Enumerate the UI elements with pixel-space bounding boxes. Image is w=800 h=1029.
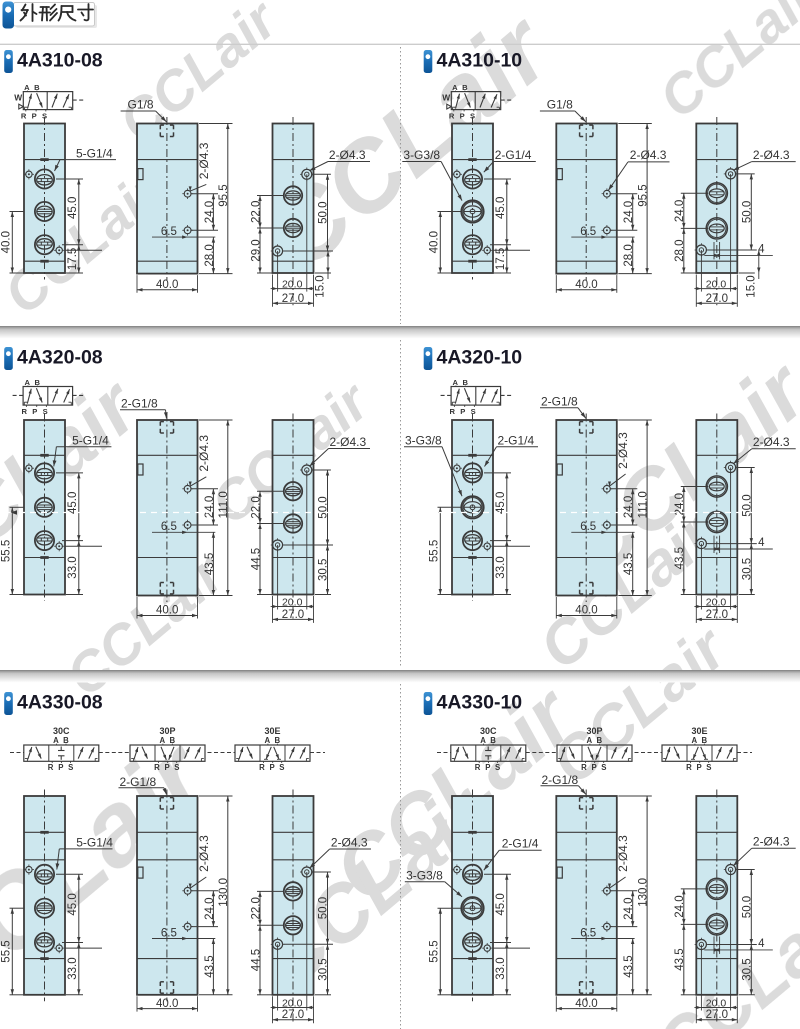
svg-text:50.0: 50.0 <box>742 494 754 516</box>
svg-text:2-Ø4.3: 2-Ø4.3 <box>616 835 630 872</box>
svg-text:P: P <box>58 763 63 772</box>
svg-text:2-Ø4.3: 2-Ø4.3 <box>330 435 367 449</box>
svg-text:20.0: 20.0 <box>282 596 303 608</box>
svg-text:33.0: 33.0 <box>67 957 79 979</box>
svg-text:43.5: 43.5 <box>623 955 635 977</box>
svg-text:A: A <box>586 736 592 745</box>
svg-text:2-Ø4.3: 2-Ø4.3 <box>630 148 667 162</box>
svg-text:2-G1/8: 2-G1/8 <box>121 397 158 411</box>
svg-text:2-Ø4.3: 2-Ø4.3 <box>331 836 368 850</box>
svg-text:P: P <box>485 763 490 772</box>
svg-text:3-G3/8: 3-G3/8 <box>406 868 443 882</box>
svg-text:A: A <box>53 736 59 745</box>
svg-text:24.0: 24.0 <box>623 898 635 920</box>
svg-text:S: S <box>471 407 476 416</box>
svg-text:A: A <box>264 736 270 745</box>
svg-text:27.0: 27.0 <box>706 1009 728 1021</box>
svg-text:4: 4 <box>758 537 765 549</box>
svg-text:S: S <box>174 763 179 772</box>
svg-text:55.5: 55.5 <box>1 940 13 962</box>
svg-text:45.0: 45.0 <box>495 197 507 219</box>
svg-text:30.5: 30.5 <box>318 559 330 581</box>
svg-text:4A320-10: 4A320-10 <box>437 347 523 369</box>
svg-text:R: R <box>21 112 27 121</box>
svg-text:20.0: 20.0 <box>706 997 727 1009</box>
svg-text:130.0: 130.0 <box>218 878 230 907</box>
svg-text:6.5: 6.5 <box>580 226 596 238</box>
svg-text:40.0: 40.0 <box>156 605 178 617</box>
svg-text:45.0: 45.0 <box>495 893 507 915</box>
svg-text:6.5: 6.5 <box>161 927 177 939</box>
svg-text:20.0: 20.0 <box>706 596 727 608</box>
svg-text:20.0: 20.0 <box>282 278 303 290</box>
svg-text:27.0: 27.0 <box>282 293 304 305</box>
svg-text:28.0: 28.0 <box>674 240 686 262</box>
svg-text:6.5: 6.5 <box>580 927 596 939</box>
svg-text:43.5: 43.5 <box>204 553 216 575</box>
svg-text:6.5: 6.5 <box>580 521 596 533</box>
svg-text:55.5: 55.5 <box>1 540 13 562</box>
svg-text:R: R <box>475 763 481 772</box>
svg-text:24.0: 24.0 <box>204 201 216 223</box>
svg-text:4A330-08: 4A330-08 <box>17 692 103 714</box>
svg-text:A: A <box>159 736 165 745</box>
svg-text:22.0: 22.0 <box>250 496 262 518</box>
svg-text:G1/8: G1/8 <box>128 98 154 112</box>
svg-text:2-G1/8: 2-G1/8 <box>541 395 578 409</box>
svg-text:P: P <box>460 112 465 121</box>
svg-text:R: R <box>686 763 692 772</box>
svg-text:P: P <box>32 112 37 121</box>
svg-text:50.0: 50.0 <box>742 896 754 918</box>
svg-text:40.0: 40.0 <box>575 279 597 291</box>
svg-text:44.5: 44.5 <box>250 949 262 971</box>
svg-text:4A320-08: 4A320-08 <box>17 347 103 369</box>
svg-text:28.0: 28.0 <box>204 244 216 266</box>
svg-text:2-G1/8: 2-G1/8 <box>120 775 157 789</box>
svg-text:R: R <box>21 407 27 416</box>
svg-text:22.0: 22.0 <box>250 897 262 919</box>
svg-text:43.5: 43.5 <box>204 955 216 977</box>
svg-text:2-Ø4.3: 2-Ø4.3 <box>197 142 211 179</box>
svg-text:S: S <box>68 763 73 772</box>
svg-text:3-G3/8: 3-G3/8 <box>403 148 440 162</box>
svg-text:2-Ø4.3: 2-Ø4.3 <box>753 148 790 162</box>
svg-text:29.0: 29.0 <box>250 239 262 261</box>
svg-text:24.0: 24.0 <box>204 496 216 518</box>
svg-text:S: S <box>279 763 284 772</box>
svg-text:30E: 30E <box>691 726 707 736</box>
svg-text:P: P <box>460 407 465 416</box>
svg-text:50.0: 50.0 <box>318 202 330 224</box>
svg-text:27.0: 27.0 <box>282 609 304 621</box>
svg-text:111.0: 111.0 <box>218 491 230 518</box>
svg-text:45.0: 45.0 <box>67 492 79 514</box>
svg-text:2-Ø4.3: 2-Ø4.3 <box>197 435 211 472</box>
svg-text:30P: 30P <box>586 726 602 736</box>
svg-text:S: S <box>601 763 606 772</box>
svg-text:4: 4 <box>758 938 765 950</box>
svg-text:G1/8: G1/8 <box>547 98 573 112</box>
svg-text:30.5: 30.5 <box>742 558 754 580</box>
svg-text:33.0: 33.0 <box>495 957 507 979</box>
svg-text:33.0: 33.0 <box>495 556 507 578</box>
svg-text:24.0: 24.0 <box>674 895 686 917</box>
svg-text:24.0: 24.0 <box>623 201 635 223</box>
svg-text:W: W <box>442 93 450 103</box>
svg-text:R: R <box>48 763 54 772</box>
svg-text:R: R <box>449 112 455 121</box>
svg-text:P: P <box>591 763 596 772</box>
svg-text:15.0: 15.0 <box>745 275 757 297</box>
svg-text:50.0: 50.0 <box>742 201 754 223</box>
svg-text:50.0: 50.0 <box>318 496 330 518</box>
svg-text:50.0: 50.0 <box>318 897 330 919</box>
svg-text:43.5: 43.5 <box>674 547 686 569</box>
svg-text:4: 4 <box>758 243 765 255</box>
svg-text:27.0: 27.0 <box>282 1009 304 1021</box>
svg-text:30C: 30C <box>480 726 497 736</box>
svg-text:40.0: 40.0 <box>156 998 178 1010</box>
svg-text:40.0: 40.0 <box>1 231 13 253</box>
svg-text:40.0: 40.0 <box>429 231 441 253</box>
svg-text:4A310-10: 4A310-10 <box>437 50 523 72</box>
svg-text:28.0: 28.0 <box>623 244 635 266</box>
svg-text:R: R <box>154 763 160 772</box>
svg-text:W: W <box>14 93 22 103</box>
svg-text:130.0: 130.0 <box>638 878 650 907</box>
svg-text:2-G1/4: 2-G1/4 <box>495 148 532 162</box>
svg-text:43.5: 43.5 <box>674 948 686 970</box>
svg-text:27.0: 27.0 <box>706 293 728 305</box>
svg-text:2-Ø4.3: 2-Ø4.3 <box>329 148 366 162</box>
svg-text:17.5: 17.5 <box>67 248 79 270</box>
svg-text:40.0: 40.0 <box>156 279 178 291</box>
svg-text:30.5: 30.5 <box>318 958 330 980</box>
svg-text:20.0: 20.0 <box>706 278 727 290</box>
svg-text:2-Ø4.3: 2-Ø4.3 <box>753 835 790 849</box>
svg-text:55.5: 55.5 <box>429 940 441 962</box>
svg-text:S: S <box>706 763 711 772</box>
svg-text:30P: 30P <box>159 726 175 736</box>
svg-text:5-G1/4: 5-G1/4 <box>76 836 113 850</box>
svg-text:30E: 30E <box>264 726 280 736</box>
svg-text:2-Ø4.3: 2-Ø4.3 <box>753 435 790 449</box>
svg-text:95.5: 95.5 <box>218 184 230 206</box>
svg-text:40.0: 40.0 <box>575 998 597 1010</box>
svg-text:40.0: 40.0 <box>575 605 597 617</box>
svg-text:P: P <box>696 763 701 772</box>
svg-text:24.0: 24.0 <box>623 496 635 518</box>
svg-text:30.5: 30.5 <box>742 958 754 980</box>
svg-text:5-G1/4: 5-G1/4 <box>76 147 113 161</box>
svg-text:45.0: 45.0 <box>495 492 507 514</box>
svg-text:55.5: 55.5 <box>429 540 441 562</box>
svg-text:20.0: 20.0 <box>282 997 303 1009</box>
svg-text:R: R <box>449 407 455 416</box>
svg-text:P: P <box>32 407 37 416</box>
svg-text:24.0: 24.0 <box>204 898 216 920</box>
svg-text:111.0: 111.0 <box>638 491 650 518</box>
svg-text:30C: 30C <box>53 726 70 736</box>
svg-text:45.0: 45.0 <box>67 197 79 219</box>
svg-text:45.0: 45.0 <box>67 893 79 915</box>
svg-text:2-Ø4.3: 2-Ø4.3 <box>616 432 630 469</box>
svg-text:P: P <box>269 763 274 772</box>
svg-text:17.5: 17.5 <box>495 248 507 270</box>
svg-text:2-G1/4: 2-G1/4 <box>502 837 539 851</box>
svg-text:5-G1/4: 5-G1/4 <box>72 434 109 448</box>
svg-text:R: R <box>581 763 587 772</box>
svg-text:95.5: 95.5 <box>638 184 650 206</box>
svg-text:P: P <box>164 763 169 772</box>
svg-text:4A330-10: 4A330-10 <box>437 692 523 714</box>
svg-text:24.0: 24.0 <box>674 200 686 222</box>
svg-text:R: R <box>259 763 265 772</box>
svg-text:S: S <box>495 763 500 772</box>
svg-text:4A310-08: 4A310-08 <box>17 50 103 72</box>
svg-text:15.0: 15.0 <box>315 275 327 297</box>
svg-text:A: A <box>691 736 697 745</box>
svg-text:6.5: 6.5 <box>161 226 177 238</box>
svg-text:27.0: 27.0 <box>706 609 728 621</box>
svg-text:44.5: 44.5 <box>250 548 262 570</box>
svg-text:3-G3/8: 3-G3/8 <box>405 434 442 448</box>
svg-text:33.0: 33.0 <box>67 556 79 578</box>
svg-text:6.5: 6.5 <box>161 521 177 533</box>
svg-text:S: S <box>43 407 48 416</box>
svg-text:22.0: 22.0 <box>250 201 262 223</box>
svg-text:2-Ø4.3: 2-Ø4.3 <box>197 835 211 872</box>
svg-text:2-G1/8: 2-G1/8 <box>542 773 579 787</box>
svg-text:2-G1/4: 2-G1/4 <box>498 434 535 448</box>
svg-text:43.5: 43.5 <box>623 553 635 575</box>
